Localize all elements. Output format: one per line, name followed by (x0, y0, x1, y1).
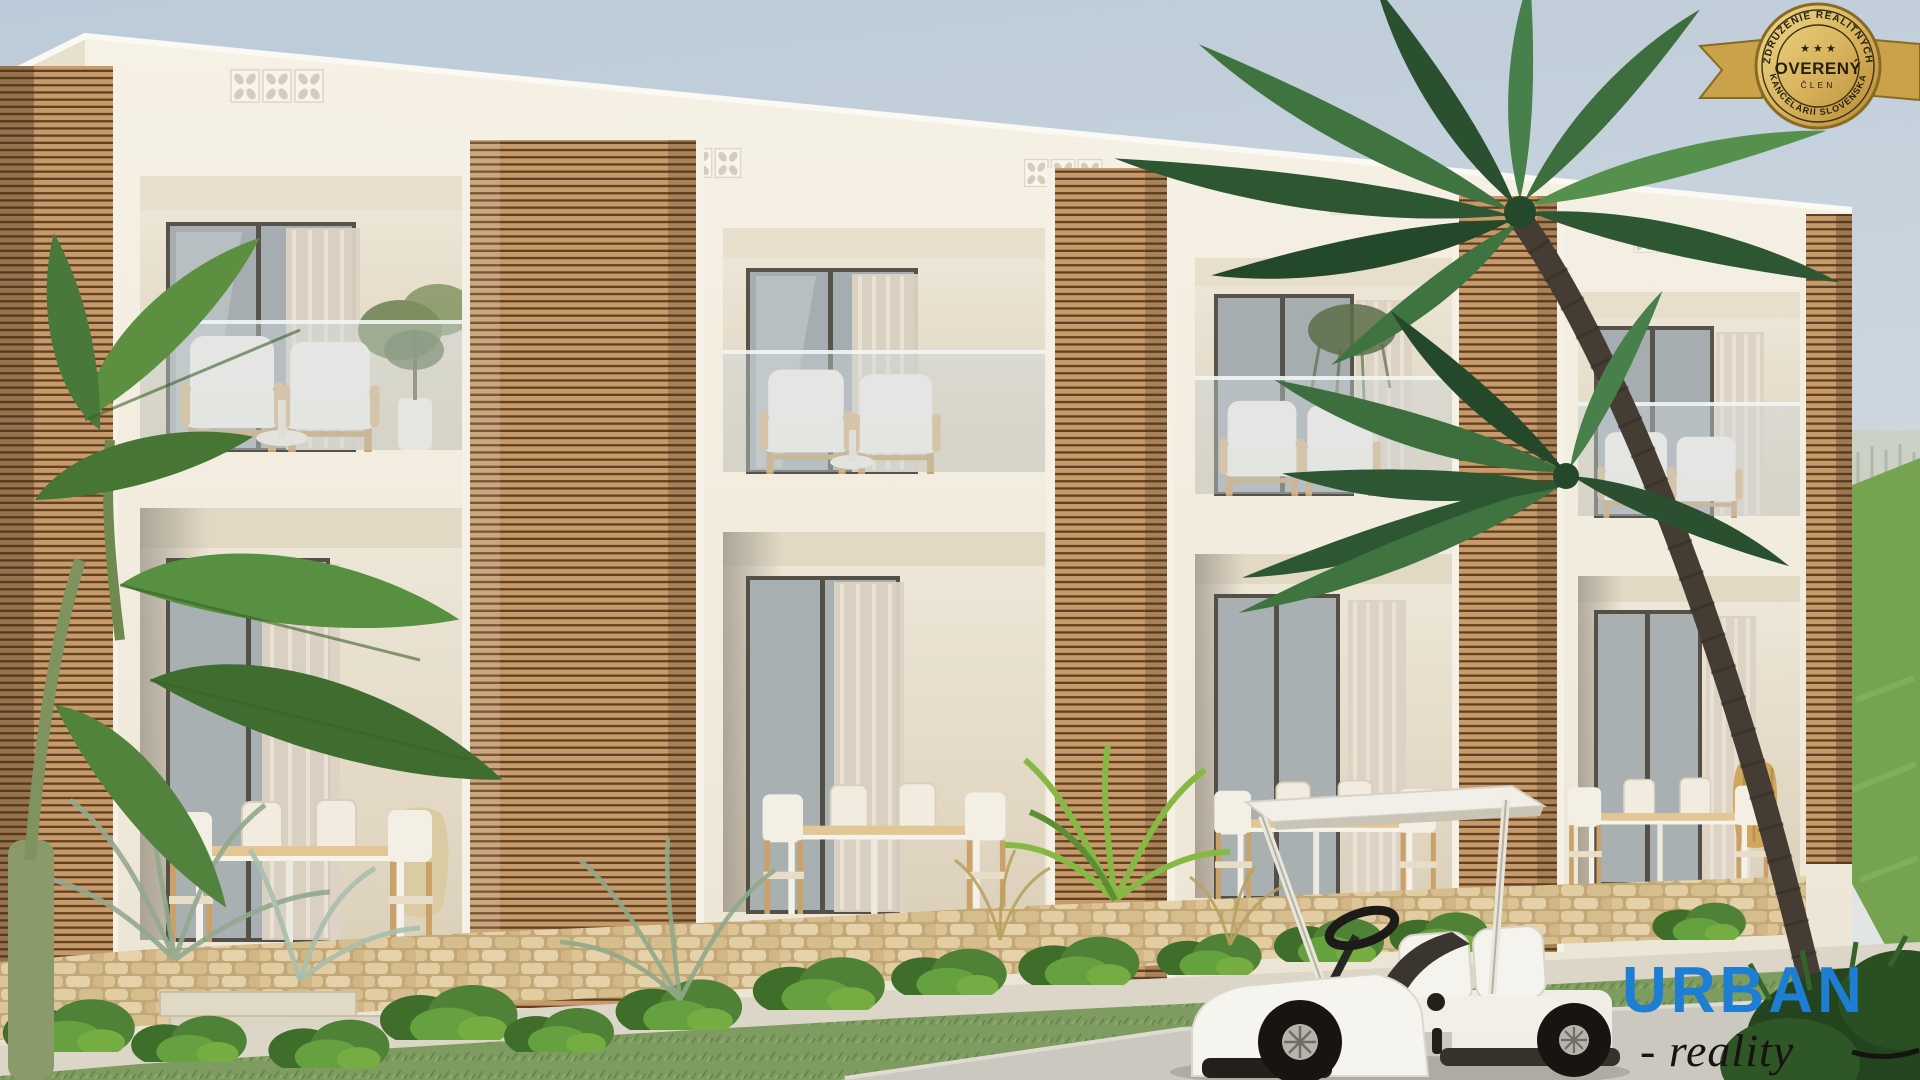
render-canvas: ZDRUŽENIE REALITNÝCH KANCELÁRIÍ SLOVENSK… (0, 0, 1920, 1080)
glass-railing (723, 352, 1045, 472)
property-photo: ZDRUŽENIE REALITNÝCH KANCELÁRIÍ SLOVENSK… (0, 0, 1920, 1080)
pillar-corner (1806, 214, 1852, 864)
logo-brand-text: URBAN (1622, 955, 1866, 1026)
badge-subtitle: ČLEN (1801, 80, 1836, 90)
balcony-bay-2 (723, 228, 1045, 474)
logo-tagline-text: - reality (1640, 1025, 1794, 1076)
badge-stars: ★ ★ ★ (1800, 43, 1836, 55)
pillar-4 (1452, 196, 1564, 956)
glass-railing (1578, 404, 1800, 516)
glass-railing (140, 322, 490, 450)
badge-title: OVERENÝ (1775, 59, 1862, 78)
terrace-bay-3 (1195, 554, 1455, 900)
cart-rear-wheel (1537, 1003, 1611, 1077)
terrace-bay-2 (723, 532, 1045, 914)
